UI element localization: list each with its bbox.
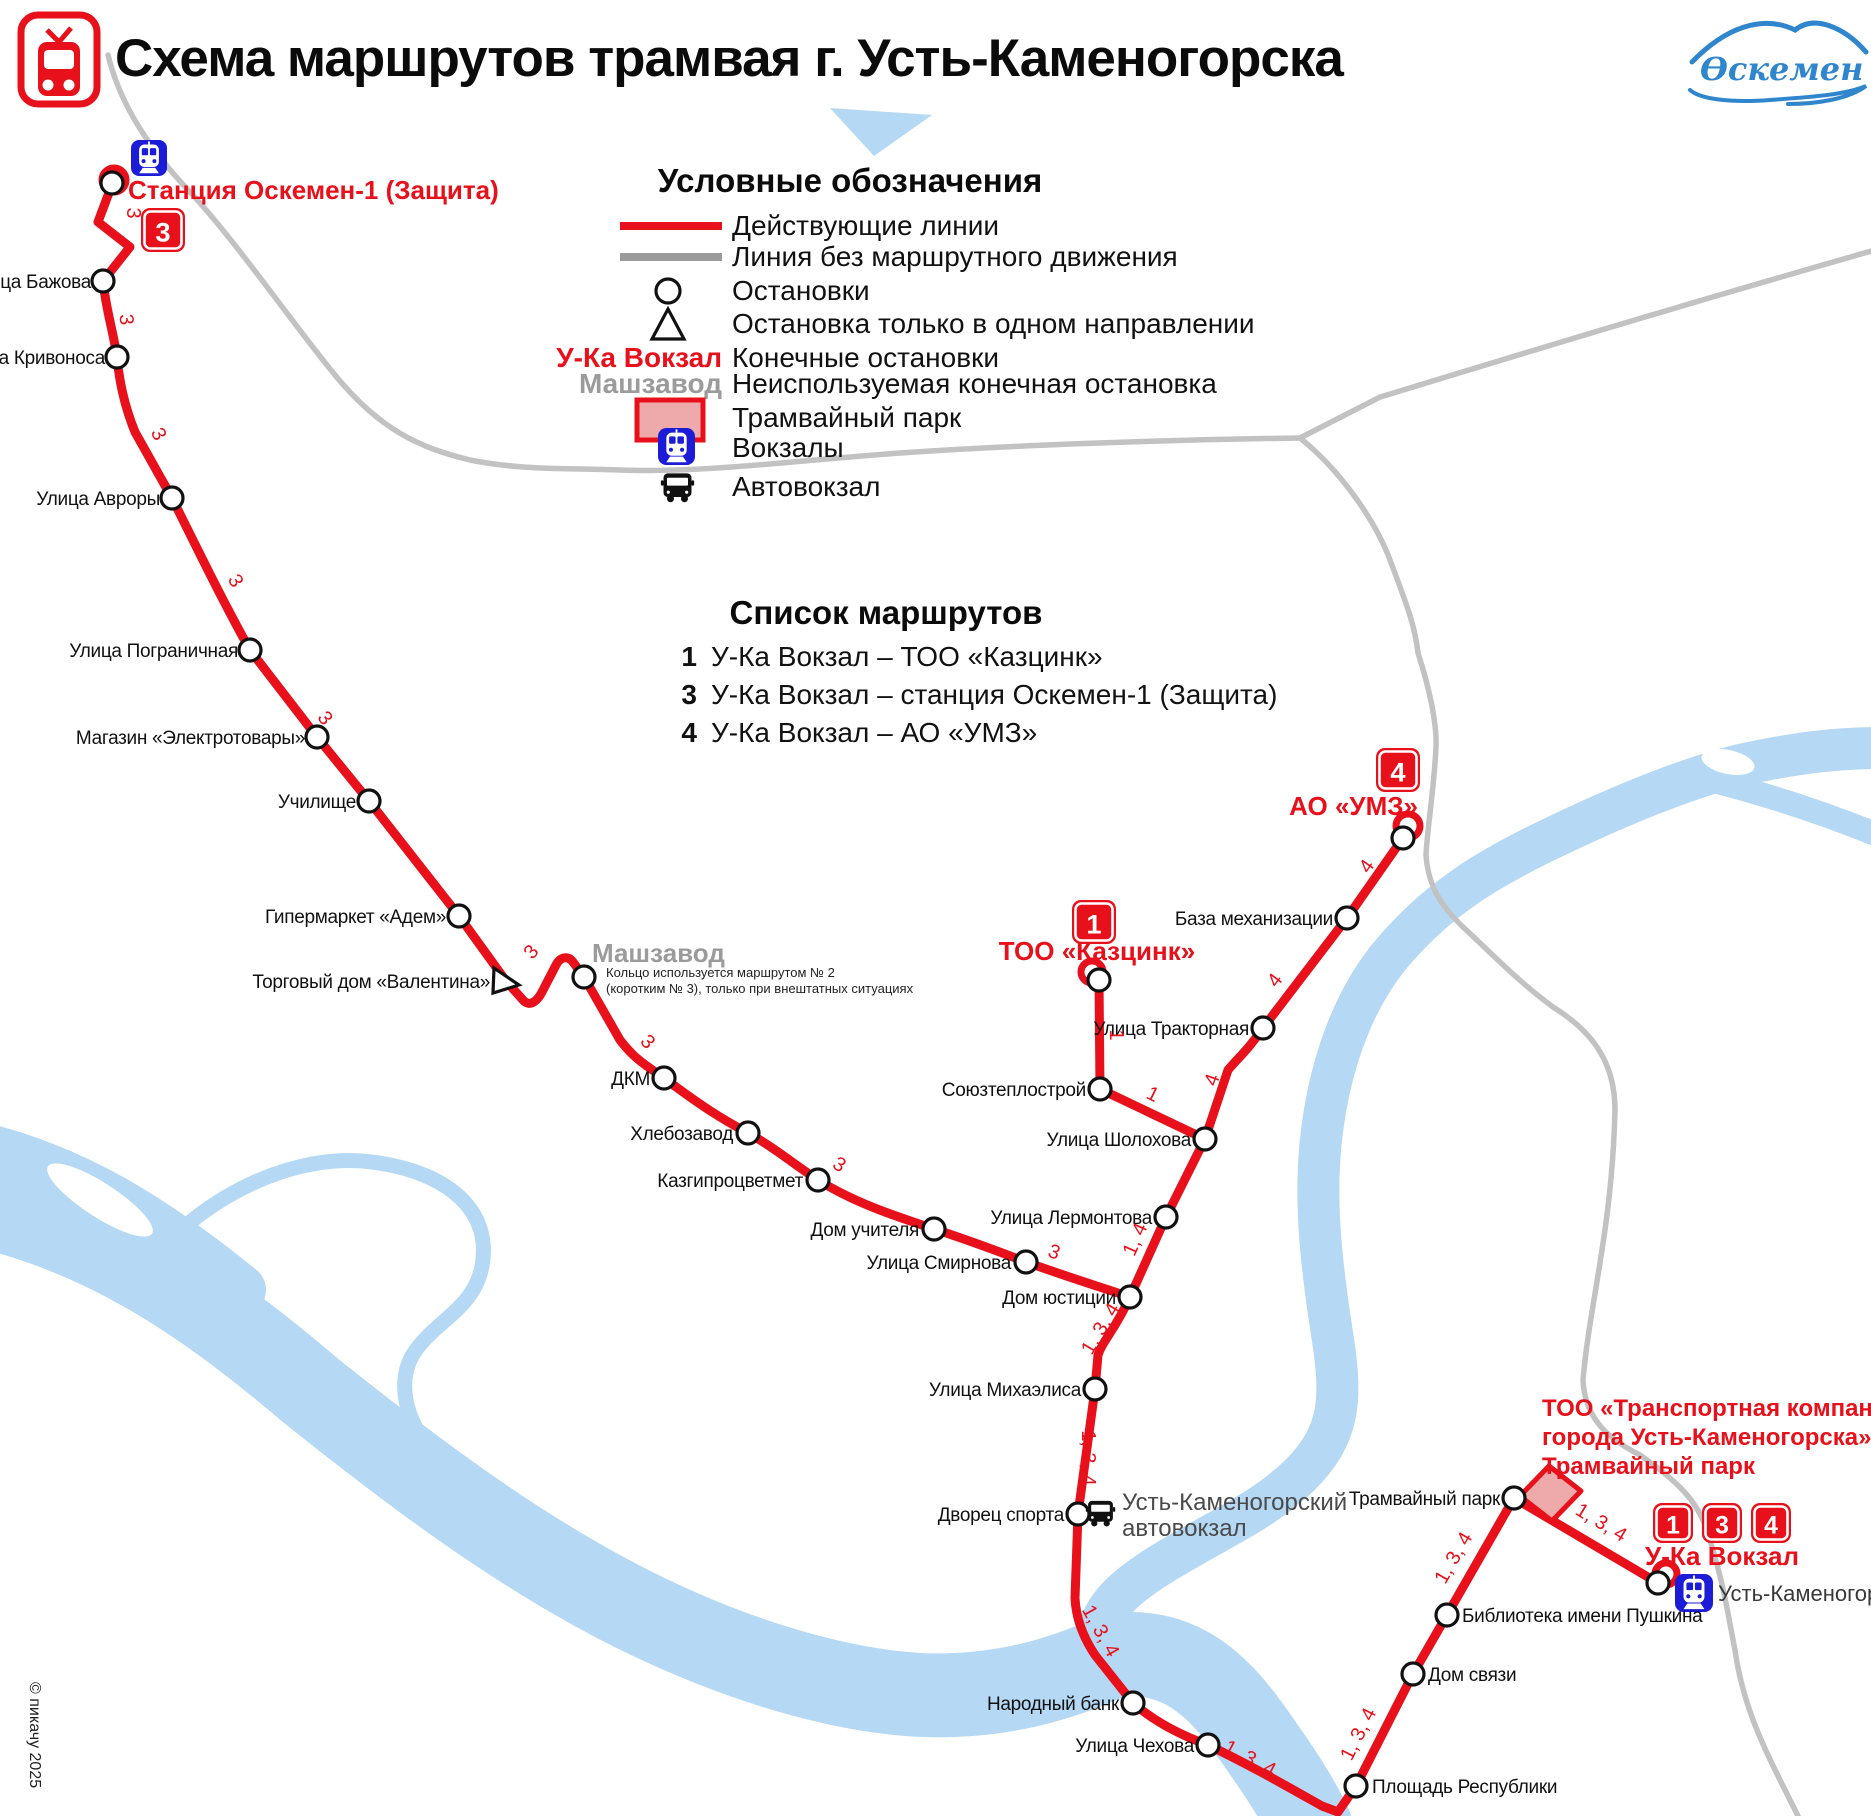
stop-circle [1155,1206,1177,1228]
stop-label: Дворец спорта [938,1505,1065,1526]
route-number-line-label: 3 [520,941,544,964]
bus-terminal-label-line2: автовокзал [1122,1515,1247,1542]
stop-label: Дом связи [1428,1665,1516,1686]
route-list: Список маршрутов 1 У-Ка Вокзал – ТОО «Ка… [681,594,1277,748]
stop-label: Улица Чехова [1075,1736,1194,1757]
stop-label: Машзавод [592,938,725,968]
badges-layer: 314134 [141,208,1791,1543]
stop-circle [92,270,114,292]
stop-label: Улица Бажова [0,272,92,293]
route-number-line-label: 3 [223,571,248,592]
route-badge: 3 [141,208,185,252]
bus-icon [1086,1501,1115,1527]
route-number-line-label: 1 [1143,1082,1163,1107]
stop-circle [1197,1734,1219,1756]
stop-circle [737,1122,759,1144]
svg-text:4: 4 [1764,1512,1778,1539]
stop-circle [1402,1663,1424,1685]
train-icon [658,428,695,465]
route-number-line-label: 3 [146,424,171,444]
legend-label: Остановка только в одном направлении [732,308,1255,339]
terminal-circle [1392,827,1414,849]
route-number-line-label: 4 [1263,969,1287,991]
stop-circle [1436,1604,1458,1626]
stop-label: Улица Лермонтова [990,1208,1152,1229]
svg-text:3: 3 [155,216,170,247]
stop-circle [239,639,261,661]
stop-circle [358,790,380,812]
stop-label: Училище [278,792,356,813]
stop-label: ДКМ [611,1069,650,1090]
route-number-line-label: 3 [829,1153,850,1178]
route-list-title: Список маршрутов [730,594,1043,631]
route-number-line-label: 1 [1105,1029,1127,1040]
stop-label: Хлебозавод [630,1124,733,1145]
depot-company-label-line2: города Усть-Каменогорска» [1542,1424,1871,1451]
route-number-line-label: 3 [636,1030,660,1053]
oskemen-logo-text: Өскемен [1700,50,1863,88]
stop-label: Улица Пограничная [69,641,238,662]
stop-circle [1084,1378,1106,1400]
stop-label: АО «УМЗ» [1289,791,1418,821]
stop-circle [161,487,183,509]
route-number: 1 [681,641,697,672]
stop-label: Улица Шолохова [1046,1130,1191,1151]
svg-text:4: 4 [1390,756,1406,787]
stop-circle [1089,1078,1111,1100]
stop-label: Дом юстиции [1002,1288,1116,1309]
legend-title: Условные обозначения [658,162,1043,199]
railway-branch-northeast [1300,250,1871,438]
route-badge: 4 [1751,1503,1791,1543]
terminal-circle [1647,1572,1669,1594]
island-mid [668,1732,762,1779]
route-number-line-label: 3 [115,313,138,326]
stop-circle [573,966,595,988]
route-description: У-Ка Вокзал – станция Оскемен-1 (Защита) [711,679,1277,710]
tram-map: 314134 Станция Оскемен-1 (Защита)Улица Б… [0,0,1871,1816]
stop-label: Магазин «Электротовары» [76,728,305,749]
stop-label: Станция Оскемен-1 (Защита) [128,175,499,205]
page-title: Схема маршрутов трамвая г. Усть-Каменого… [115,29,1344,88]
stop-circle [1345,1775,1367,1797]
legend-label: Автовокзал [732,471,880,502]
stop-label: ТОО «Казцинк» [999,936,1195,966]
mashzavod-note-line1: Кольцо используется маршрутом № 2 [606,965,835,980]
stop-label: Улица Кривоноса [0,348,106,369]
river-patch-top [830,108,932,156]
legend-label: Трамвайный парк [732,402,962,433]
header: Схема маршрутов трамвая г. Усть-Каменого… [21,15,1866,104]
route-number-line-label: 3 [1045,1240,1063,1264]
route-description: У-Ка Вокзал – ТОО «Казцинк» [711,641,1103,672]
route-number-line-label: 1, 3, 4 [1077,1430,1099,1486]
stop-circle [1252,1017,1274,1039]
stop-label: Улица Авроры [36,489,160,510]
svg-text:1: 1 [1666,1512,1680,1539]
terminal-circle [101,172,123,194]
stop-circle [923,1218,945,1240]
stop-circle [306,726,328,748]
route-number-line-label: 4 [1200,1071,1224,1089]
river-ulba-branch [1690,775,1871,836]
stop-label: Трамвайный парк [1349,1489,1501,1510]
stop-circle [1336,907,1358,929]
oskemen-logo: Өскемен [1690,23,1866,104]
legend-label: Неиспользуемая конечная остановка [732,368,1217,399]
svg-text:3: 3 [1715,1512,1729,1539]
stop-label: Казгипроцветмет [657,1171,803,1192]
depot-company-label-line3: Трамвайный парк [1542,1453,1756,1480]
tram-map-poster: 314134 Станция Оскемен-1 (Защита)Улица Б… [0,0,1871,1816]
tram-logo-icon [21,15,97,104]
stop-label: Союзтеплострой [942,1080,1086,1101]
stop-circle [653,1067,675,1089]
legend-label: Линия без маршрутного движения [732,241,1178,272]
stop-label: Улица Михаэлиса [929,1380,1082,1401]
legend-unused-terminal-sample: Машзавод [579,368,722,399]
stop-circle [1503,1487,1525,1509]
legend-label: Действующие линии [732,210,999,241]
route-description: У-Ка Вокзал – АО «УМЗ» [711,717,1037,748]
mashzavod-note-line2: (коротким № 3), только при внештатных си… [606,981,914,996]
stop-label: Улица Смирнова [867,1253,1012,1274]
stop-label: Народный банк [987,1694,1120,1715]
stop-label: Гипермаркет «Адем» [265,907,446,928]
depot-company-label-line1: ТОО «Транспортная компания [1542,1395,1871,1422]
stop-circle [448,905,470,927]
stop-label: Площадь Республики [1372,1777,1557,1798]
route-badge: 1 [1653,1503,1693,1543]
route-number-line-label: 3 [122,207,144,218]
stop-label: База механизации [1175,909,1333,930]
legend-oneway-stop-icon [652,309,684,339]
legend-stop-icon [656,279,680,303]
train-icon [131,140,167,176]
stop-circle [1194,1128,1216,1150]
stop-label: У-Ка Вокзал [1645,1541,1799,1571]
stop-circle [106,346,128,368]
city-station-label: Усть-Каменогорск [1718,1581,1871,1606]
stop-circle [1067,1503,1089,1525]
route-badge: 4 [1376,748,1420,792]
stop-circle [1015,1251,1037,1273]
route-number: 3 [681,679,697,710]
svg-text:1: 1 [1086,908,1101,939]
terminal-circle [1088,969,1110,991]
legend-label: Вокзалы [732,432,844,463]
tram-line-1 [1099,980,1205,1139]
stop-circle [1119,1286,1141,1308]
stop-label: Торговый дом «Валентина» [252,972,490,993]
bus-terminal-label-line1: Усть-Каменогорский [1122,1489,1347,1516]
legend-label: Остановки [732,275,870,306]
bus-icon [661,473,694,502]
route-badge: 3 [1702,1503,1742,1543]
stop-circle [807,1169,829,1191]
stop-circle [1122,1692,1144,1714]
copyright: © пикачу 2025 [26,1682,43,1788]
stop-label: Дом учителя [810,1220,919,1241]
route-number: 4 [681,717,697,748]
stop-label: Библиотека имени Пушкина [1462,1606,1703,1627]
